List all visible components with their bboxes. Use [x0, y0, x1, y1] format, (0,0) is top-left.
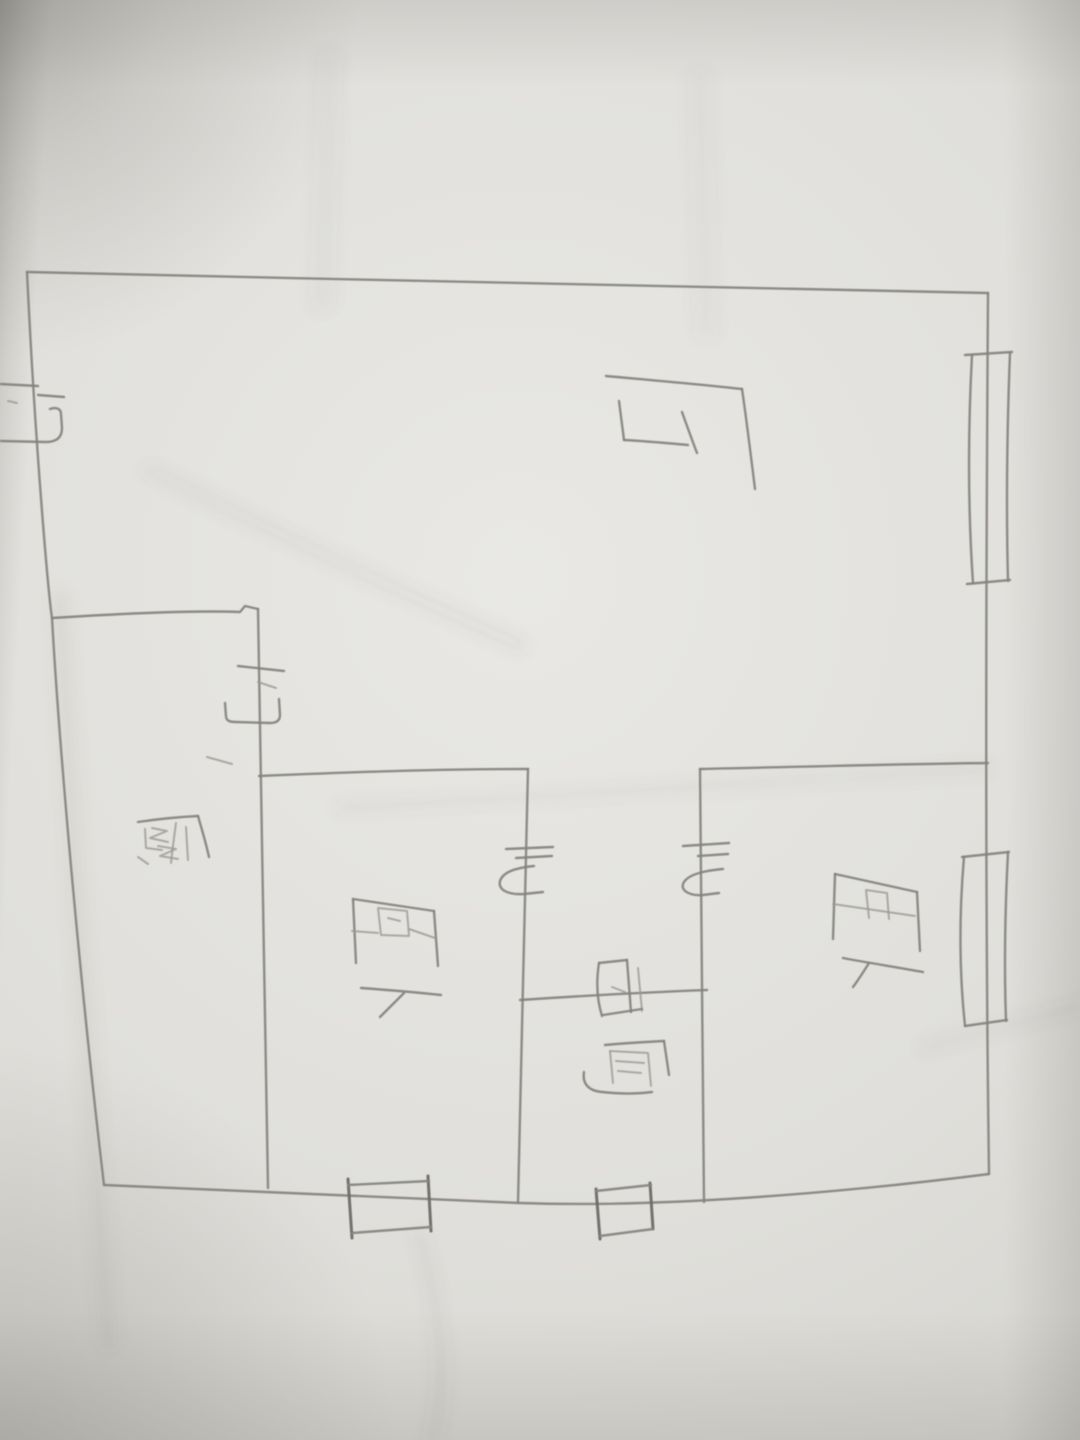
floor-plan-photo: 厅 厨 卧 卫 [0, 0, 1080, 1440]
bathroom-window-symbol [596, 1183, 653, 1239]
window-edge [650, 1183, 653, 1229]
bedroom-left-divider-wall [518, 769, 528, 1203]
label-stroke [606, 376, 742, 389]
window-edge [960, 857, 965, 1026]
kitchen-divider-wall [258, 609, 268, 1188]
wall-right [986, 293, 989, 1174]
pencil-smudge [207, 757, 232, 764]
window-edge [1005, 852, 1008, 1021]
door-tick [516, 856, 552, 858]
kitchen-door-symbol [225, 666, 284, 723]
room-label-bedroom-left: 卧 [324, 899, 452, 1020]
window-edge [348, 1181, 429, 1185]
kitchen-top-wall [52, 606, 258, 618]
door-tick [8, 401, 17, 403]
outer-walls [27, 272, 989, 1204]
window-edge [969, 355, 973, 583]
door-tick [683, 843, 729, 846]
crease-line [322, 60, 330, 300]
wall-bottom [104, 1174, 989, 1204]
crease-line [925, 1006, 1080, 1048]
crease-line [340, 768, 990, 808]
bedroom-right-door-symbol [683, 843, 729, 895]
bedroom-left-window-symbol [348, 1176, 431, 1238]
window-edge [600, 1229, 653, 1236]
bedroom-right-divider-wall [700, 769, 704, 1202]
entry-door-symbol [0, 384, 64, 442]
crease-line [700, 80, 706, 330]
bedroom-left-top-wall [259, 769, 528, 776]
door-tick [238, 666, 284, 671]
door-bracket [500, 866, 543, 894]
crease-line [420, 1235, 441, 1440]
window-edge [348, 1179, 352, 1238]
window-edge [596, 1189, 600, 1239]
door-bracket [225, 699, 280, 723]
label-stroke [664, 1041, 669, 1075]
room-label-kitchen: 厨 [123, 810, 209, 880]
paper-creases [60, 60, 1080, 1440]
floor-plan-drawing: 厅 厨 卧 卫 [0, 0, 1080, 1440]
door-bracket [683, 869, 723, 895]
crease-line [60, 600, 108, 1340]
room-label-hall: 厅 [606, 376, 771, 530]
door-tick [506, 847, 553, 849]
room-label-bathroom: 卫 厕 [578, 957, 669, 1098]
door-tick [38, 395, 64, 397]
wall-top [27, 272, 988, 293]
window-edge [596, 1185, 651, 1191]
window-edge [1007, 353, 1010, 581]
door-tick [258, 682, 276, 688]
bedroom-right-window-symbol [960, 852, 1009, 1026]
crease-line [150, 470, 520, 645]
room-label-bedroom-right: 卧 [805, 874, 933, 987]
door-tick [698, 854, 728, 856]
window-edge [428, 1176, 431, 1231]
door-bracket [0, 408, 62, 442]
